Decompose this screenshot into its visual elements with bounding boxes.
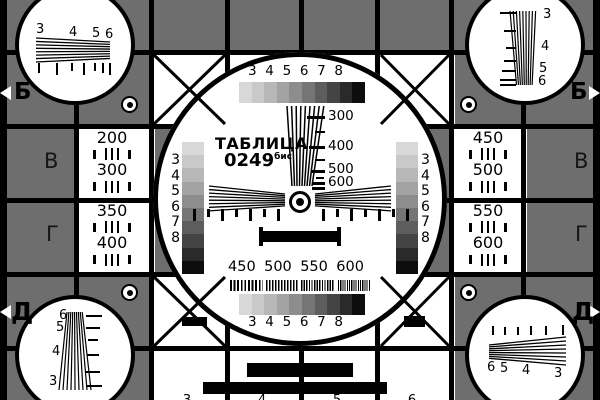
grayscale-label: 3 (421, 153, 434, 167)
cut-digit-bottom: 4 (255, 394, 269, 400)
cut-digit-bottom: 6 (405, 394, 419, 400)
gray-step (396, 261, 418, 274)
tick (562, 325, 564, 335)
tick (263, 209, 266, 217)
tick-pattern (462, 253, 513, 266)
scale-dash (315, 159, 325, 161)
gray-step (277, 294, 290, 315)
gray-step (340, 82, 353, 103)
tick (500, 12, 516, 14)
gray-step (239, 82, 252, 103)
gray-step (182, 195, 204, 208)
tick (86, 371, 100, 373)
tick (492, 326, 494, 335)
burst-label: 450 (228, 260, 256, 275)
tick (500, 84, 516, 86)
tick (364, 209, 367, 217)
test-card: 345678 300 400 500 600 ТАБЛИЦА 0249бис 3… (0, 0, 600, 400)
panel-number: 400 (97, 235, 128, 251)
gray-step (396, 248, 418, 261)
tick (207, 209, 210, 217)
tick (530, 326, 532, 335)
panel-number: 600 (473, 235, 504, 251)
convergence-target-icon (121, 96, 138, 113)
tick (193, 209, 196, 221)
gray-step (396, 155, 418, 168)
tick-pattern (462, 180, 513, 193)
grayscale-column-left (182, 142, 204, 274)
grayscale-column-right-labels: 345678 (421, 153, 434, 245)
burst-group (338, 280, 370, 291)
grayscale-label: 8 (334, 65, 343, 79)
black-rect-left (182, 317, 207, 326)
grayscale-bar-bottom (239, 294, 365, 315)
corner-label: 3 (36, 23, 44, 36)
cut-digit-top: 5 (330, 0, 344, 3)
gray-step (315, 294, 328, 315)
corner-wedge-top-left (36, 37, 110, 64)
gray-step (396, 168, 418, 181)
gray-step (352, 82, 365, 103)
corner-label: 6 (487, 361, 495, 374)
tick (38, 63, 40, 73)
tick-pattern (86, 180, 137, 193)
scale-dash (309, 146, 325, 149)
black-rect-right (404, 316, 425, 327)
corner-label: 3 (554, 367, 562, 380)
panel-number: 550 (473, 203, 504, 219)
edge-arrow-left-icon (0, 86, 11, 100)
gray-step (302, 82, 315, 103)
edge-arrow-right-icon (589, 86, 600, 100)
panel-number: 200 (97, 130, 128, 146)
grayscale-label: 5 (421, 184, 434, 198)
grayscale-label: 4 (167, 169, 180, 183)
cut-digit-top: 3 (180, 0, 194, 3)
tick-pattern (86, 148, 137, 161)
scale-dash (311, 170, 325, 173)
corner-label: 3 (49, 375, 57, 388)
tick-pattern (86, 253, 137, 266)
gray-step (289, 82, 302, 103)
tick (504, 30, 516, 32)
cut-digit-bottom: 3 (180, 394, 194, 400)
gray-step (289, 294, 302, 315)
tick (87, 354, 99, 356)
corner-label: 5 (500, 362, 508, 375)
tick (56, 63, 58, 75)
gray-step (182, 234, 204, 247)
tick (102, 63, 104, 73)
gray-step (302, 294, 315, 315)
edge-letter-v-left: В (44, 151, 58, 172)
gray-step (182, 142, 204, 155)
grayscale-label: 8 (334, 316, 343, 330)
burst-label: 550 (300, 260, 328, 275)
tick (88, 339, 98, 341)
tick (336, 209, 339, 217)
gray-step (396, 182, 418, 195)
grayscale-label: 6 (167, 200, 180, 214)
grayscale-label: 6 (300, 65, 309, 79)
panel-left-bottom: 350 400 (79, 201, 145, 268)
tick (322, 209, 325, 221)
gray-step (252, 294, 265, 315)
corner-label: 6 (538, 75, 546, 88)
grayscale-labels-top: 345678 (248, 65, 343, 79)
gray-step (396, 142, 418, 155)
tick (406, 209, 409, 221)
grayscale-label: 6 (300, 316, 309, 330)
gray-step (396, 195, 418, 208)
grayscale-label: 6 (421, 200, 434, 214)
cut-digit-top: 4 (255, 0, 269, 3)
edge-letter-v-right: В (574, 151, 588, 172)
tick (86, 385, 102, 387)
multiburst (230, 280, 370, 291)
gray-step (327, 82, 340, 103)
corner-label: 3 (543, 8, 551, 21)
grayscale-label: 8 (421, 231, 434, 245)
gray-step (315, 82, 328, 103)
tick-pattern (462, 221, 513, 234)
burst-label: 500 (264, 260, 292, 275)
tick (109, 63, 111, 75)
panel-left-top: 200 300 (79, 128, 145, 195)
convergence-target-icon (460, 284, 477, 301)
gray-step (264, 82, 277, 103)
tick (83, 63, 85, 75)
edge-letter-b-left: Б (14, 81, 32, 104)
gray-step (340, 294, 353, 315)
edge-letter-b-right: Б (570, 81, 588, 104)
gray-step (277, 82, 290, 103)
edge-arrow-left-icon (0, 305, 11, 319)
grayscale-label: 5 (283, 316, 292, 330)
gray-step (252, 82, 265, 103)
tick-pattern (86, 221, 137, 234)
grayscale-labels-bottom: 345678 (248, 316, 343, 330)
grayscale-label: 7 (167, 215, 180, 229)
grayscale-label: 7 (317, 65, 326, 79)
card-code: 0249бис (224, 152, 292, 170)
gray-step (264, 294, 277, 315)
card-code-suffix: бис (274, 152, 292, 162)
grayscale-label: 7 (317, 316, 326, 330)
grayscale-label: 7 (421, 215, 434, 229)
gray-step (352, 294, 365, 315)
scale-dash (307, 116, 325, 119)
tick (249, 209, 252, 221)
grayscale-label: 4 (265, 65, 274, 79)
grayscale-column-right (396, 142, 418, 274)
scale-dash (315, 131, 325, 133)
wedge-scale-300: 300 (328, 110, 354, 124)
corner-label: 5 (56, 321, 64, 334)
grayscale-label: 5 (283, 65, 292, 79)
corner-label: 4 (522, 364, 530, 377)
gray-step (182, 261, 204, 274)
tick (506, 47, 516, 49)
gray-step (239, 294, 252, 315)
tick (71, 63, 73, 71)
grayscale-label: 4 (421, 169, 434, 183)
gray-step (182, 182, 204, 195)
edge-letter-g-right: Г (575, 224, 588, 245)
gray-step (396, 234, 418, 247)
convergence-target-icon (121, 284, 138, 301)
grayscale-label: 3 (167, 153, 180, 167)
tick (502, 70, 516, 72)
panel-right-top: 450 500 (455, 128, 521, 195)
grayscale-label: 5 (167, 184, 180, 198)
center-bullseye-dot (296, 198, 304, 206)
panel-number: 350 (97, 203, 128, 219)
edge-letter-g-left: Г (46, 224, 59, 245)
panel-number: 500 (473, 162, 504, 178)
tick (504, 60, 516, 62)
tick (517, 327, 519, 335)
card-code-number: 0249 (224, 150, 274, 171)
tick (235, 209, 238, 217)
convergence-target-icon (460, 96, 477, 113)
tick (500, 79, 516, 81)
tick (277, 209, 280, 221)
burst-group (301, 280, 335, 291)
tick (504, 327, 506, 335)
grayscale-bar-top (239, 82, 365, 103)
reference-bar (262, 231, 338, 242)
wedge-scale-400: 400 (328, 140, 354, 154)
gray-step (182, 155, 204, 168)
tick (86, 327, 100, 329)
tick (221, 209, 224, 221)
burst-group (230, 280, 263, 291)
tick (392, 209, 395, 217)
tick (86, 315, 102, 317)
tick (545, 326, 547, 335)
panel-right-bottom: 550 600 (455, 201, 521, 268)
tick (378, 209, 381, 221)
tick-pattern (462, 148, 513, 161)
gray-step (182, 221, 204, 234)
tick (94, 63, 96, 71)
corner-label: 4 (52, 345, 60, 358)
grayscale-label: 3 (248, 316, 257, 330)
sync-bar-upper (247, 363, 353, 377)
burst-label: 600 (336, 260, 364, 275)
grayscale-label: 8 (167, 231, 180, 245)
panel-number: 300 (97, 162, 128, 178)
corner-label: 4 (541, 40, 549, 53)
edge-letter-d-right: Д (572, 299, 594, 324)
gray-step (327, 294, 340, 315)
gray-step (182, 248, 204, 261)
tick (350, 209, 353, 221)
sync-bar-lower (203, 382, 387, 394)
cut-digit-bottom: 5 (330, 394, 344, 400)
scale-dash (316, 177, 324, 179)
grayscale-label: 4 (265, 316, 274, 330)
grayscale-label: 3 (248, 65, 257, 79)
cut-digit-top: 6 (405, 0, 419, 3)
gray-step (182, 168, 204, 181)
gray-step (396, 221, 418, 234)
edge-letter-d-left: Д (11, 299, 33, 324)
burst-labels: 450500550600 (228, 260, 364, 275)
panel-number: 450 (473, 130, 504, 146)
grayscale-column-left-labels: 345678 (167, 153, 180, 245)
burst-group (266, 280, 299, 291)
